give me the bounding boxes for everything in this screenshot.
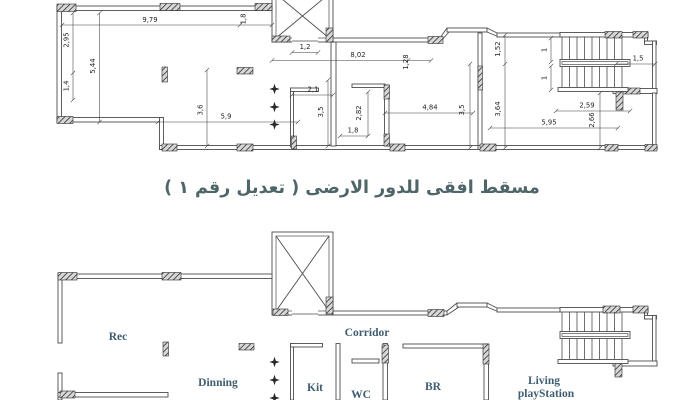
dim-label: 2,66 [588,112,596,127]
star-icon [269,84,279,94]
plan-title: مسقط افقى للدور الارضى ( تعديل رقم ١ ) [164,178,540,198]
drawing-svg: 9,79 1,8 2,95 1,4 5,44 3,6 5,9 1,2 8,02 … [0,0,700,400]
room-label-living-line1: Living [528,375,560,387]
dim-label: 1,52 [494,41,502,56]
room-label-living-line2: playStation [518,388,575,400]
dim-label: 1,5 [633,55,644,63]
column-marker-stars [269,357,279,400]
room-labels: Rec Dinning Corridor Kit WC BR Living pl… [109,327,575,400]
star-icon [269,357,279,367]
star-icon [269,375,279,385]
room-label-corridor: Corridor [345,327,390,339]
column-marker-stars [269,84,279,130]
dim-label: 5,44 [89,58,97,73]
dim-label: 1,2 [300,43,311,51]
dim-label: 1,4 [63,81,71,92]
star-icon [269,102,279,112]
dim-label: 2,1 [308,86,319,94]
dim-label: 9,79 [142,16,157,24]
star-icon [269,119,279,129]
dim-label: 8,02 [350,51,365,59]
room-label-kit: Kit [307,382,323,394]
dim-label: 1 [541,76,549,80]
dimension-labels: 9,79 1,8 2,95 1,4 5,44 3,6 5,9 1,2 8,02 … [63,14,644,135]
star-icon [269,393,279,400]
floor-plan-drawing: 9,79 1,8 2,95 1,4 5,44 3,6 5,9 1,2 8,02 … [0,0,700,400]
dim-label: 5,95 [541,119,556,127]
dim-label: 5,9 [221,113,232,121]
dim-label: 3,6 [197,105,205,116]
dim-label: 1,8 [348,127,359,135]
dim-label: 3,5 [317,107,325,118]
dim-label: 1,28 [402,54,410,69]
room-label-rec: Rec [109,331,128,343]
dim-label: 1 [541,48,549,52]
dim-label: 3,5 [458,105,466,116]
first-floor-plan: Rec Dinning Corridor Kit WC BR Living pl… [58,232,657,400]
dim-label: 3,64 [494,101,502,116]
staircase [558,312,630,364]
dimension-ticks [60,11,657,150]
dim-label: 2,95 [63,32,71,47]
room-label-br: BR [425,381,442,393]
dim-label: 4,84 [422,104,437,112]
elevator-shaft-icon [272,232,333,317]
dim-label: 1,8 [240,14,248,25]
room-label-wc: WC [351,389,371,400]
ground-floor-plan: 9,79 1,8 2,95 1,4 5,44 3,6 5,9 1,2 8,02 … [57,0,657,151]
dimension-lines [60,11,657,150]
room-label-dinning: Dinning [198,377,238,389]
dim-label: 2,59 [579,102,594,110]
dim-label: 2,82 [355,105,363,120]
